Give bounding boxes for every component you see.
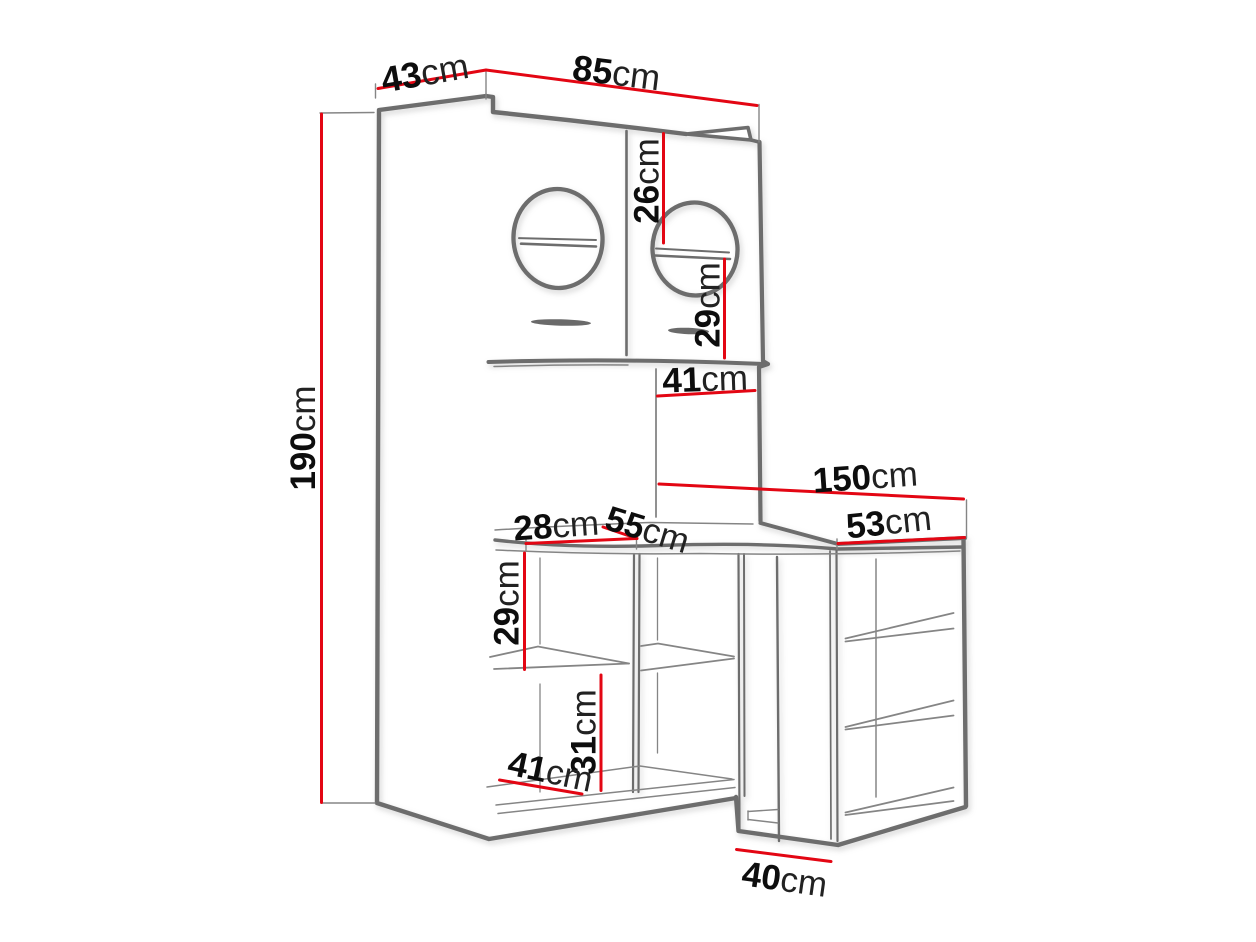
svg-text:29cm: 29cm [689,262,728,348]
svg-text:26cm: 26cm [628,138,667,224]
svg-text:28cm: 28cm [512,504,600,549]
svg-text:41cm: 41cm [662,359,749,401]
svg-text:150cm: 150cm [811,454,919,500]
svg-text:190cm: 190cm [284,385,323,490]
svg-text:29cm: 29cm [488,560,527,646]
